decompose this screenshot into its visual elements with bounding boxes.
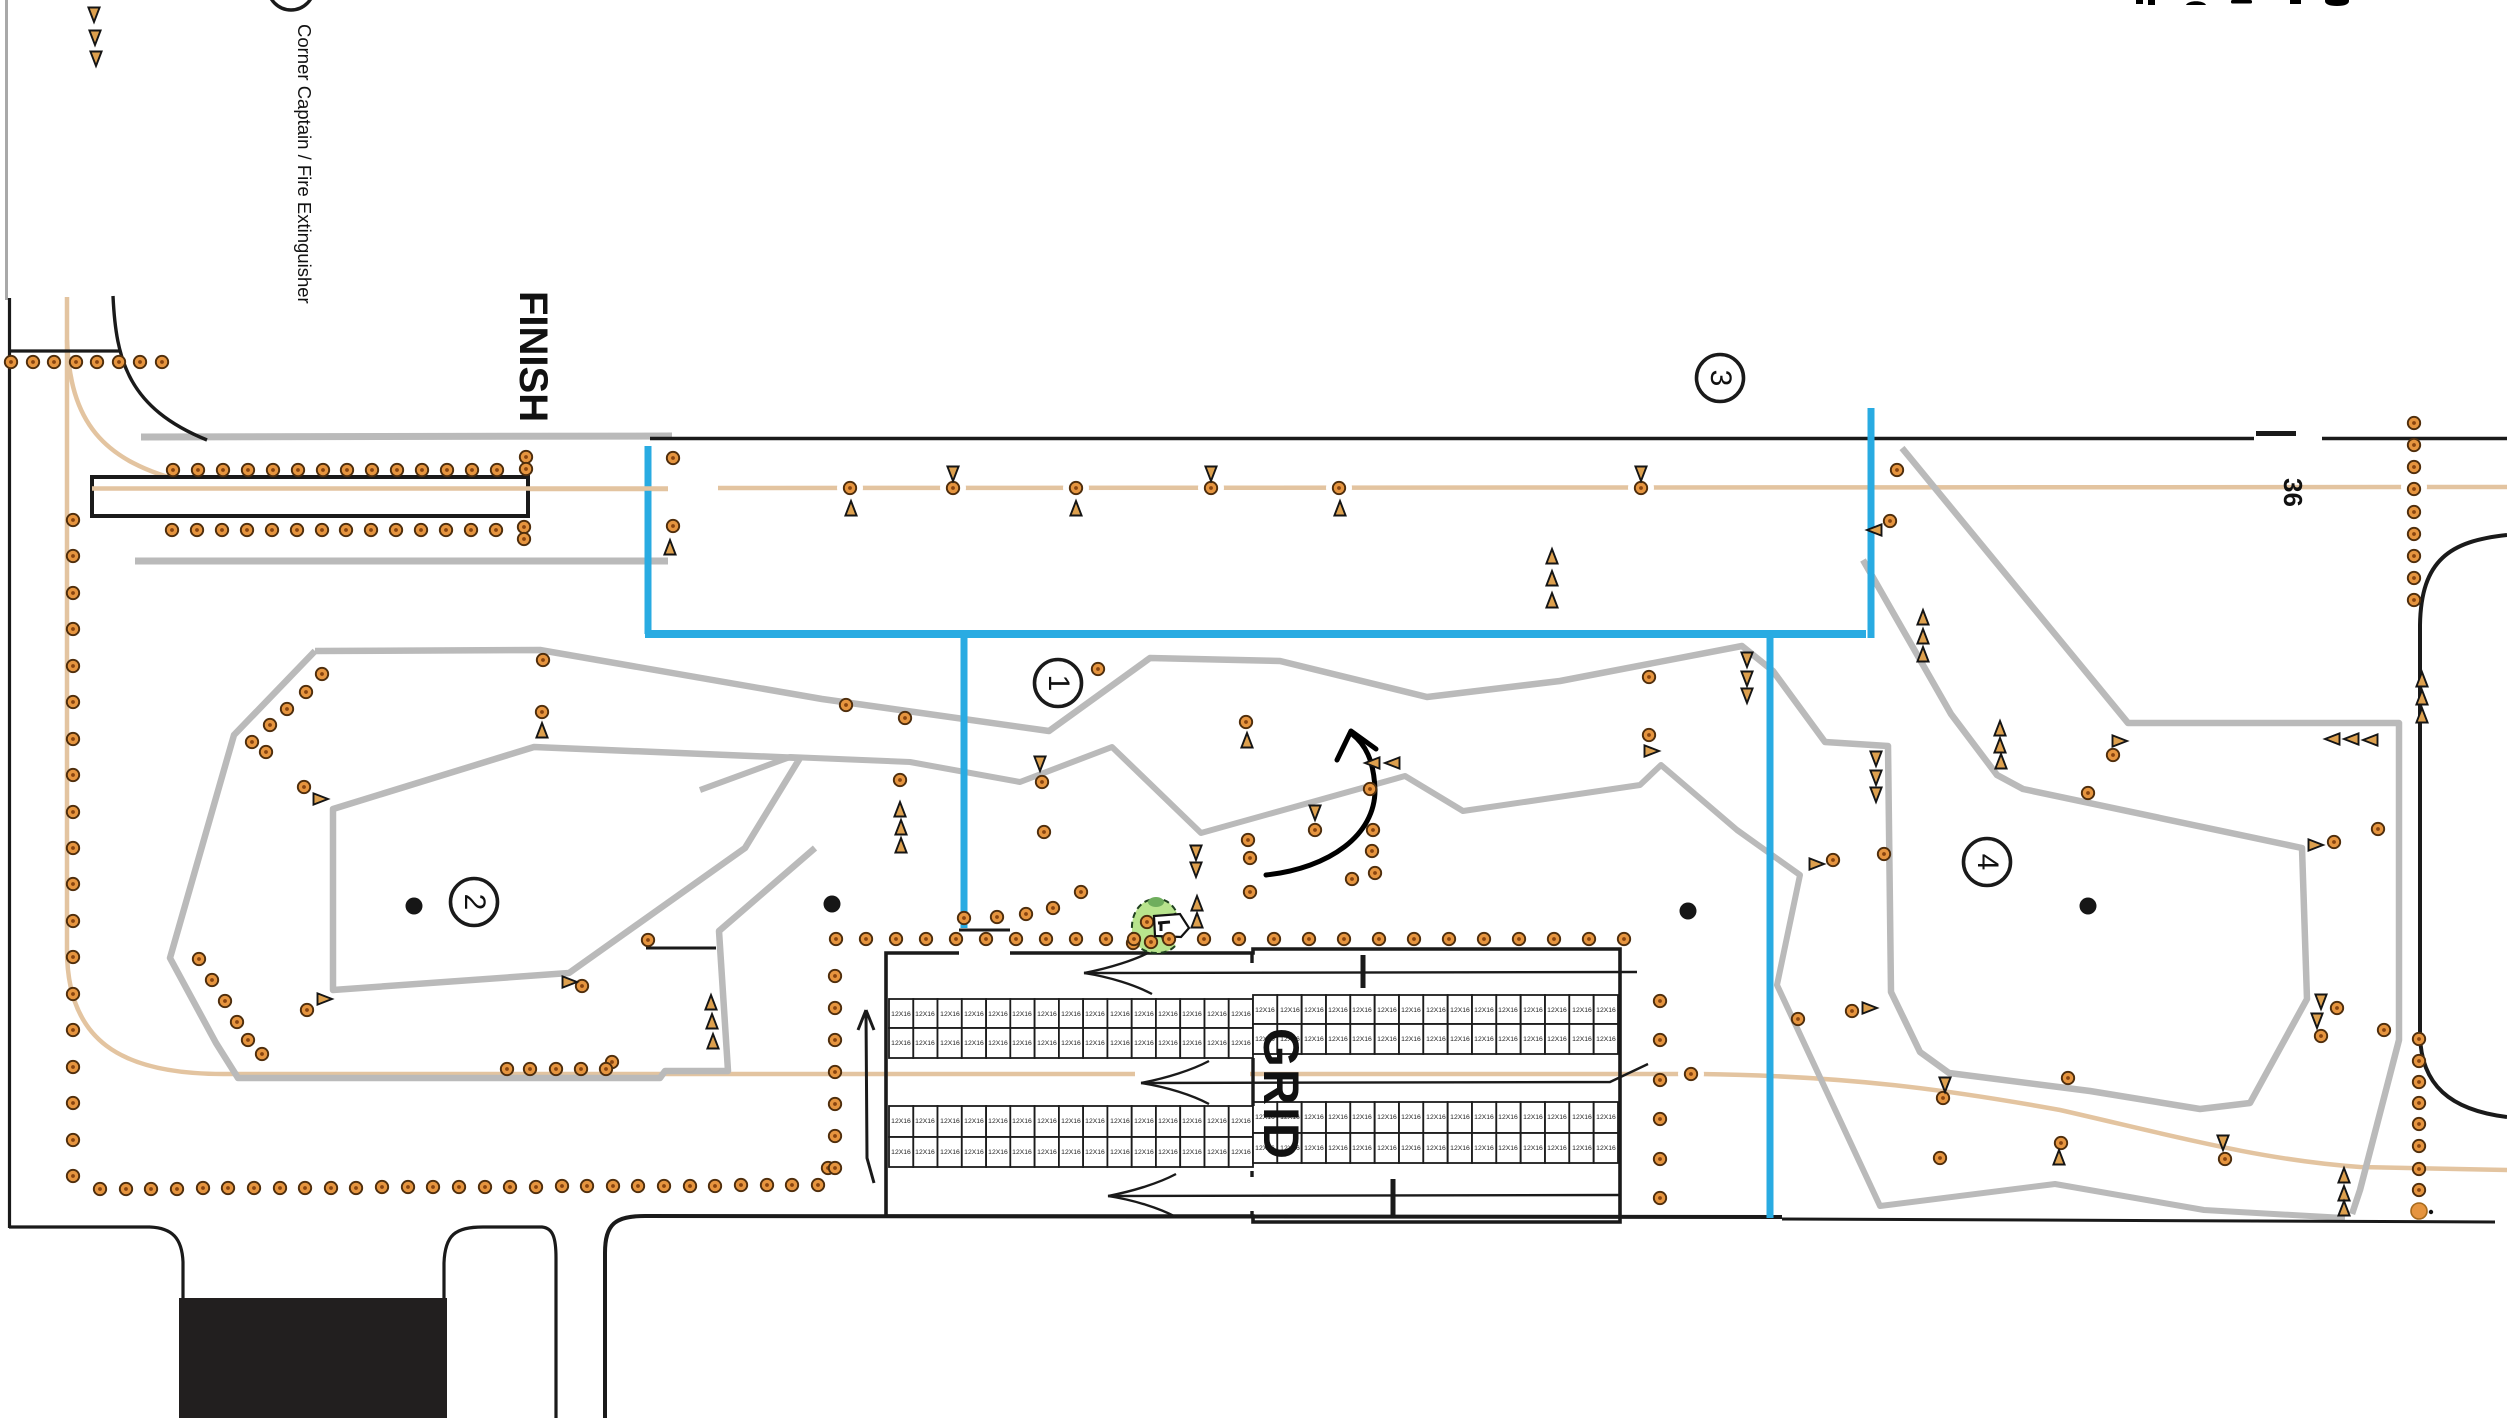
svg-text:12X16: 12X16 bbox=[1158, 1011, 1178, 1018]
svg-text:12X16: 12X16 bbox=[1255, 1007, 1275, 1014]
svg-text:12X16: 12X16 bbox=[1207, 1149, 1227, 1156]
svg-text:12X16: 12X16 bbox=[1231, 1040, 1251, 1047]
svg-text:12X16: 12X16 bbox=[1596, 1114, 1616, 1121]
svg-text:12X16: 12X16 bbox=[1037, 1040, 1057, 1047]
svg-text:12X16: 12X16 bbox=[1158, 1118, 1178, 1125]
svg-text:3: 3 bbox=[1704, 370, 1737, 387]
svg-text:12X16: 12X16 bbox=[1572, 1145, 1592, 1152]
svg-text:12X16: 12X16 bbox=[1061, 1011, 1081, 1018]
svg-text:12X16: 12X16 bbox=[1352, 1036, 1372, 1043]
svg-text:12X16: 12X16 bbox=[891, 1149, 911, 1156]
svg-text:12X16: 12X16 bbox=[1523, 1114, 1543, 1121]
svg-text:12X16: 12X16 bbox=[1474, 1036, 1494, 1043]
svg-text:12X16: 12X16 bbox=[1182, 1149, 1202, 1156]
svg-text:12X16: 12X16 bbox=[1523, 1007, 1543, 1014]
svg-text:12X16: 12X16 bbox=[1328, 1036, 1348, 1043]
svg-text:12X16: 12X16 bbox=[1401, 1036, 1421, 1043]
svg-text:12X16: 12X16 bbox=[1085, 1118, 1105, 1125]
svg-text:4: 4 bbox=[1971, 854, 2004, 871]
svg-text:12X16: 12X16 bbox=[1377, 1114, 1397, 1121]
svg-text:GRID: GRID bbox=[1253, 1028, 1309, 1161]
svg-text:12X16: 12X16 bbox=[1134, 1011, 1154, 1018]
svg-text:12X16: 12X16 bbox=[1182, 1011, 1202, 1018]
svg-text:12X16: 12X16 bbox=[1134, 1118, 1154, 1125]
svg-text:2: 2 bbox=[458, 894, 491, 911]
svg-text:12X16: 12X16 bbox=[1012, 1149, 1032, 1156]
svg-text:12X16: 12X16 bbox=[915, 1149, 935, 1156]
svg-text:12X16: 12X16 bbox=[1012, 1118, 1032, 1125]
svg-text:12X16: 12X16 bbox=[1304, 1007, 1324, 1014]
svg-text:12X16: 12X16 bbox=[915, 1040, 935, 1047]
svg-text:12X16: 12X16 bbox=[964, 1149, 984, 1156]
svg-text:12X16: 12X16 bbox=[1110, 1040, 1130, 1047]
svg-text:12X16: 12X16 bbox=[1523, 1145, 1543, 1152]
svg-text:12X16: 12X16 bbox=[1377, 1036, 1397, 1043]
svg-text:12X16: 12X16 bbox=[1498, 1114, 1518, 1121]
svg-text:12X16: 12X16 bbox=[940, 1040, 960, 1047]
svg-text:12X16: 12X16 bbox=[1572, 1114, 1592, 1121]
svg-text:12X16: 12X16 bbox=[1134, 1040, 1154, 1047]
svg-text:12X16: 12X16 bbox=[1547, 1114, 1567, 1121]
svg-text:12X16: 12X16 bbox=[1085, 1149, 1105, 1156]
svg-text:12X16: 12X16 bbox=[988, 1149, 1008, 1156]
svg-text:12X16: 12X16 bbox=[1474, 1145, 1494, 1152]
svg-text:12X16: 12X16 bbox=[1231, 1149, 1251, 1156]
svg-text:12X16: 12X16 bbox=[891, 1011, 911, 1018]
svg-text:12X16: 12X16 bbox=[1450, 1145, 1470, 1152]
svg-text:12X16: 12X16 bbox=[1547, 1145, 1567, 1152]
svg-text:12X16: 12X16 bbox=[1352, 1007, 1372, 1014]
svg-text:12X16: 12X16 bbox=[1110, 1011, 1130, 1018]
svg-text:12X16: 12X16 bbox=[1207, 1011, 1227, 1018]
svg-text:12X16: 12X16 bbox=[1450, 1114, 1470, 1121]
svg-text:12X16: 12X16 bbox=[1037, 1149, 1057, 1156]
svg-text:12X16: 12X16 bbox=[1450, 1007, 1470, 1014]
svg-text:12X16: 12X16 bbox=[964, 1118, 984, 1125]
svg-text:12X16: 12X16 bbox=[940, 1149, 960, 1156]
svg-text:12X16: 12X16 bbox=[915, 1011, 935, 1018]
svg-text:FINISH: FINISH bbox=[511, 291, 555, 422]
svg-text:12X16: 12X16 bbox=[1426, 1007, 1446, 1014]
svg-text:12X16: 12X16 bbox=[1328, 1145, 1348, 1152]
svg-text:12X16: 12X16 bbox=[1426, 1036, 1446, 1043]
svg-text:12X16: 12X16 bbox=[1547, 1007, 1567, 1014]
svg-text:12X16: 12X16 bbox=[1450, 1036, 1470, 1043]
svg-text:12X16: 12X16 bbox=[1352, 1114, 1372, 1121]
svg-text:12X16: 12X16 bbox=[1110, 1118, 1130, 1125]
svg-text:1: 1 bbox=[1042, 675, 1075, 692]
svg-text:12X16: 12X16 bbox=[1377, 1145, 1397, 1152]
svg-text:12X16: 12X16 bbox=[891, 1040, 911, 1047]
svg-text:12X16: 12X16 bbox=[1596, 1007, 1616, 1014]
svg-text:12X16: 12X16 bbox=[1085, 1040, 1105, 1047]
svg-text:12X16: 12X16 bbox=[1498, 1007, 1518, 1014]
svg-text:12X16: 12X16 bbox=[1572, 1007, 1592, 1014]
svg-text:12X16: 12X16 bbox=[1596, 1036, 1616, 1043]
svg-text:12X16: 12X16 bbox=[940, 1011, 960, 1018]
svg-text:12X16: 12X16 bbox=[1061, 1149, 1081, 1156]
svg-text:12X16: 12X16 bbox=[1182, 1040, 1202, 1047]
svg-text:12X16: 12X16 bbox=[988, 1118, 1008, 1125]
svg-text:12X16: 12X16 bbox=[1280, 1007, 1300, 1014]
svg-text:12X16: 12X16 bbox=[988, 1011, 1008, 1018]
svg-text:12X16: 12X16 bbox=[964, 1011, 984, 1018]
svg-text:12X16: 12X16 bbox=[1401, 1114, 1421, 1121]
svg-text:12X16: 12X16 bbox=[1110, 1149, 1130, 1156]
svg-text:12X16: 12X16 bbox=[1474, 1114, 1494, 1121]
svg-text:36: 36 bbox=[2278, 478, 2308, 507]
svg-text:12X16: 12X16 bbox=[1572, 1036, 1592, 1043]
svg-text:12X16: 12X16 bbox=[915, 1118, 935, 1125]
svg-text:12X16: 12X16 bbox=[1158, 1040, 1178, 1047]
svg-text:12X16: 12X16 bbox=[940, 1118, 960, 1125]
svg-text:12X16: 12X16 bbox=[1523, 1036, 1543, 1043]
svg-text:12X16: 12X16 bbox=[891, 1118, 911, 1125]
svg-text:12X16: 12X16 bbox=[1401, 1145, 1421, 1152]
svg-text:12X16: 12X16 bbox=[1426, 1145, 1446, 1152]
svg-text:12X16: 12X16 bbox=[1207, 1040, 1227, 1047]
svg-text:12X16: 12X16 bbox=[1474, 1007, 1494, 1014]
svg-text:12X16: 12X16 bbox=[988, 1040, 1008, 1047]
svg-text:12X16: 12X16 bbox=[1182, 1118, 1202, 1125]
svg-text:12X16: 12X16 bbox=[1061, 1118, 1081, 1125]
svg-text:12X16: 12X16 bbox=[1377, 1007, 1397, 1014]
svg-text:12X16: 12X16 bbox=[1328, 1007, 1348, 1014]
svg-text:12X16: 12X16 bbox=[1426, 1114, 1446, 1121]
svg-text:12X16: 12X16 bbox=[1037, 1011, 1057, 1018]
svg-text:Corner Captain / Fire Extingui: Corner Captain / Fire Extinguisher bbox=[294, 24, 315, 304]
svg-text:12X16: 12X16 bbox=[1061, 1040, 1081, 1047]
svg-text:12X16: 12X16 bbox=[1012, 1011, 1032, 1018]
svg-text:12X16: 12X16 bbox=[1352, 1145, 1372, 1152]
svg-text:12X16: 12X16 bbox=[1207, 1118, 1227, 1125]
svg-text:12X16: 12X16 bbox=[1231, 1011, 1251, 1018]
svg-text:12X16: 12X16 bbox=[1037, 1118, 1057, 1125]
svg-text:12X16: 12X16 bbox=[1134, 1149, 1154, 1156]
svg-text:12X16: 12X16 bbox=[1596, 1145, 1616, 1152]
svg-text:12X16: 12X16 bbox=[1158, 1149, 1178, 1156]
svg-text:12X16: 12X16 bbox=[1498, 1145, 1518, 1152]
svg-text:12X16: 12X16 bbox=[964, 1040, 984, 1047]
svg-text:12X16: 12X16 bbox=[1547, 1036, 1567, 1043]
svg-text:12X16: 12X16 bbox=[1085, 1011, 1105, 1018]
svg-text:12X16: 12X16 bbox=[1328, 1114, 1348, 1121]
svg-text:12X16: 12X16 bbox=[1012, 1040, 1032, 1047]
svg-text:12X16: 12X16 bbox=[1401, 1007, 1421, 1014]
svg-text:12X16: 12X16 bbox=[1498, 1036, 1518, 1043]
svg-text:12X16: 12X16 bbox=[1231, 1118, 1251, 1125]
